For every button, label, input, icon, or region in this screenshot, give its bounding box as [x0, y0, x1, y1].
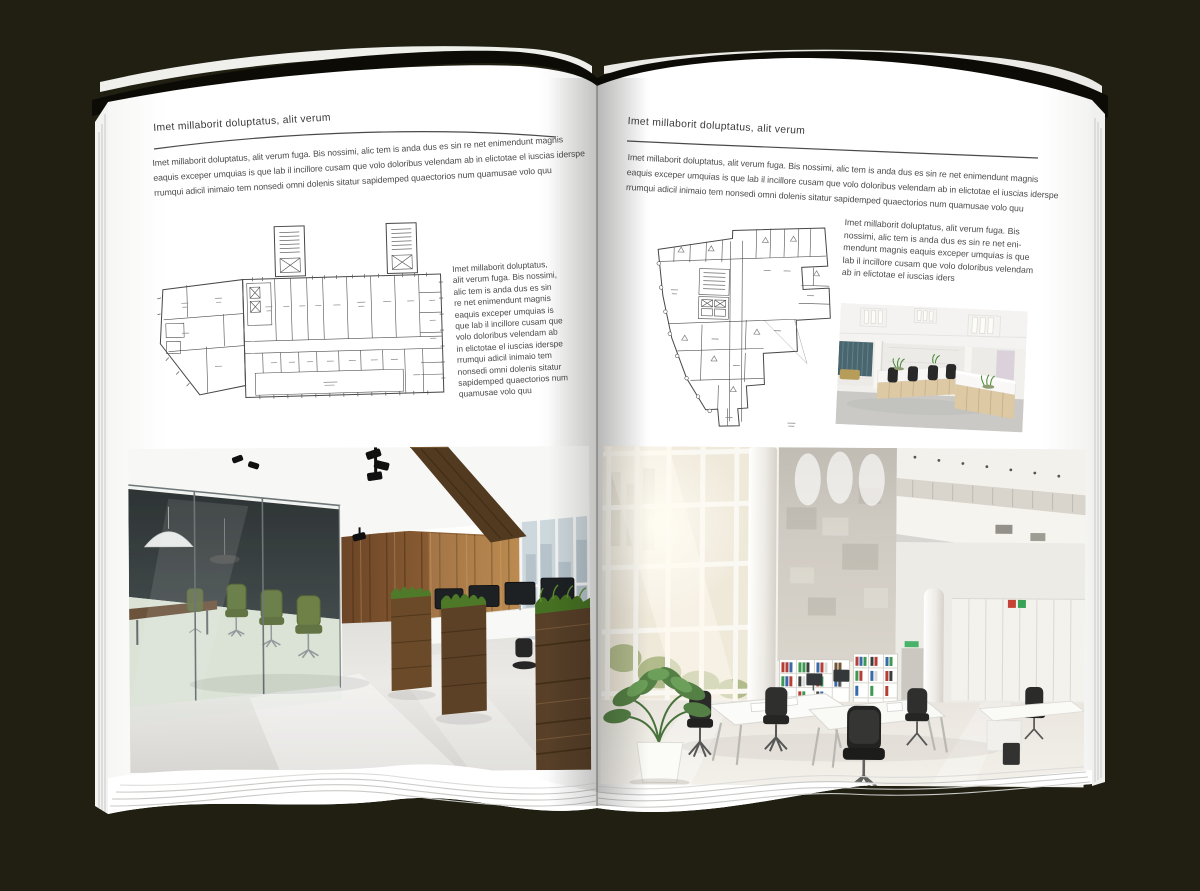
page-curl-lines-left: [110, 773, 596, 806]
right-page-intro-paragraph: Imet millaborit doluptatus, alit verum f…: [626, 150, 1060, 218]
office-photo-small: [836, 303, 1028, 432]
left-page-heading: Imet millaborit doluptatus, alit verum: [153, 112, 331, 134]
left-page-intro-paragraph: Imet millaborit doluptatus, alit verum f…: [152, 131, 586, 200]
office-photo-bright-atrium: [601, 446, 1086, 787]
right-page-side-paragraph: Imet millaborit doluptatus, alit verum f…: [842, 216, 1036, 289]
page-stack-top-left: [100, 46, 592, 92]
page-stack-left-edge: [95, 102, 108, 814]
book-cover-edge: [92, 51, 1108, 118]
right-page-heading: Imet millaborit doluptatus, alit verum: [627, 116, 805, 137]
page-stack-right-edge: [1092, 100, 1105, 786]
floor-plan-right: [639, 219, 835, 434]
page-stack-top-right: [604, 50, 1102, 96]
floor-plan-left: [155, 216, 452, 422]
office-photo-dark-loft: [128, 446, 591, 773]
brochure-mockup: Imet millaborit doluptatus, alit verum I…: [0, 0, 1200, 891]
left-page-side-paragraph: Imet millaborit doluptatus, alit verum f…: [452, 258, 569, 400]
